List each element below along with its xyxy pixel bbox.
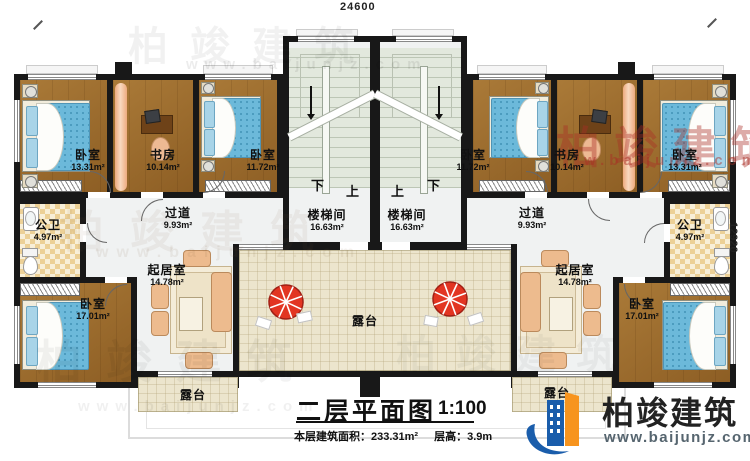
bed-duvet (689, 302, 716, 370)
terrace-door (467, 244, 511, 250)
room-area: 14.78m² (540, 277, 610, 287)
floor-height-label: 层高： (434, 431, 467, 443)
room-label-bedroom: 卧室11.72m² (228, 149, 298, 173)
room-name: 卧室 (607, 298, 677, 311)
room-label-study: 书房10.14m² (128, 149, 198, 173)
room-name: 卧室 (58, 298, 128, 311)
sofa-chair (583, 284, 601, 309)
window (479, 74, 545, 80)
room-name: 起居室 (132, 264, 202, 277)
floor-height-value: 3.9m (467, 431, 492, 443)
window (14, 306, 20, 364)
room-area: 11.72m² (438, 162, 508, 172)
window (654, 74, 722, 80)
door-opening (105, 277, 127, 283)
title-underline (296, 421, 474, 423)
stair-direction-arrow (310, 86, 312, 116)
room-name: 卧室 (228, 149, 298, 162)
room-name: 起居室 (540, 264, 610, 277)
room-label-bathroom: 公卫4.97m² (13, 219, 83, 243)
dimension-tick (33, 20, 43, 30)
room-label-bedroom: 卧室11.72m² (438, 149, 508, 173)
stair-arrow-head (435, 114, 443, 120)
window-sill (477, 65, 547, 74)
room-label-bedroom: 卧室13.31m² (53, 149, 123, 173)
pillow (537, 101, 548, 128)
lamp (203, 161, 214, 172)
drawing-scale: 1:100 (438, 398, 487, 420)
window-sill (392, 29, 454, 36)
room-area: 16.63m² (372, 222, 442, 232)
pillow (204, 129, 215, 156)
room-name: 楼梯间 (372, 209, 442, 222)
room-label-bedroom: 卧室13.31m² (650, 149, 720, 173)
room-name: 书房 (532, 149, 602, 162)
lamp (715, 86, 727, 98)
lamp (25, 176, 37, 188)
room-name: 楼梯间 (292, 209, 362, 222)
pillow (26, 138, 38, 168)
dimension-tick (707, 18, 717, 28)
stair-up-label: 上 (346, 181, 359, 200)
watermark-text: 柏竣建筑 (396, 322, 636, 380)
company-website: www.baijunjz.com (604, 429, 750, 446)
watermark-text: 柏竣建筑 (36, 326, 316, 392)
wardrobe (20, 283, 80, 296)
right-dimension-label: 12920 (727, 222, 739, 253)
watermark-site: www.baijunjz.com (186, 56, 427, 73)
stair-up-label: 上 (391, 181, 404, 200)
room-area: 4.97m² (655, 232, 725, 242)
room-name: 书房 (128, 149, 198, 162)
window-sill (652, 65, 724, 74)
window-sill (26, 65, 98, 74)
room-area: 13.31m² (53, 162, 123, 172)
stair-direction-arrow (438, 86, 440, 116)
room-area: 9.93m² (497, 220, 567, 230)
window (205, 74, 271, 80)
umbrella-icon (430, 279, 470, 319)
room-area: 14.78m² (132, 277, 202, 287)
wall-stub (618, 62, 635, 75)
room-label-corridor: 过道9.93m² (143, 207, 213, 231)
room-name: 卧室 (438, 149, 508, 162)
window (28, 74, 96, 80)
sofa (211, 272, 232, 332)
door-opening (640, 192, 662, 198)
lamp (538, 83, 549, 94)
room-label-stairwell: 楼梯间16.63m² (292, 209, 362, 233)
room-name: 过道 (497, 207, 567, 220)
room-area: 10.14m² (532, 162, 602, 172)
room-name: 卧室 (650, 149, 720, 162)
room-label-bedroom: 卧室17.01m² (607, 298, 677, 322)
corridor-floor (613, 244, 664, 277)
lamp (25, 86, 37, 98)
computer-monitor (144, 109, 161, 124)
room-area: 11.72m² (228, 162, 298, 172)
floor-area-label: 本层建筑面积： (294, 431, 371, 443)
room-label-bathroom: 公卫4.97m² (655, 219, 725, 243)
room-label-terrace: 露台 (337, 315, 393, 328)
pillow (714, 306, 726, 335)
room-name: 公卫 (655, 219, 725, 232)
pillow (714, 337, 726, 366)
room-label-stairwell: 楼梯间16.63m² (372, 209, 442, 233)
floor-plan-drawing: 24600 12920 (0, 0, 750, 461)
curtain-strip (115, 83, 127, 191)
window (730, 306, 736, 364)
door-opening (382, 242, 410, 250)
stair-down-label: 下 (427, 175, 440, 194)
door-opening (587, 192, 609, 198)
room-area: 17.01m² (58, 311, 128, 321)
stair-down-label: 下 (311, 175, 324, 194)
room-area: 10.14m² (128, 162, 198, 172)
room-area: 13.31m² (650, 162, 720, 172)
pillow (26, 106, 38, 136)
sofa-chair (151, 284, 169, 309)
pillow (204, 101, 215, 128)
door-opening (623, 277, 645, 283)
floor-area-value: 233.31m² (371, 431, 418, 443)
lamp (715, 176, 727, 188)
room-label-living: 起居室14.78m² (132, 264, 202, 288)
window (14, 100, 20, 162)
watermark-site: www.baijunjz.com (96, 244, 362, 262)
room-area: 9.93m² (143, 220, 213, 230)
room-label-terrace: 露台 (158, 389, 228, 402)
top-dimension-label: 24600 (340, 1, 376, 13)
room-name: 过道 (143, 207, 213, 220)
room-area: 4.97m² (13, 232, 83, 242)
drawing-info: 本层建筑面积：233.31m²层高：3.9m (294, 428, 492, 444)
toilet (23, 256, 38, 275)
company-name: 柏竣建筑 (602, 388, 738, 434)
room-area: 17.01m² (607, 311, 677, 321)
room-label-bedroom: 卧室17.01m² (58, 298, 128, 322)
wardrobe (670, 283, 730, 296)
toilet (714, 256, 729, 275)
room-area: 16.63m² (292, 222, 362, 232)
room-label-study: 书房10.14m² (532, 149, 602, 173)
room-label-living: 起居室14.78m² (540, 264, 610, 288)
room-name: 露台 (337, 315, 393, 328)
room-name: 公卫 (13, 219, 83, 232)
company-logo-icon (522, 386, 600, 458)
window (396, 36, 452, 42)
room-label-corridor: 过道9.93m² (497, 207, 567, 231)
lamp (203, 83, 214, 94)
room-name: 卧室 (53, 149, 123, 162)
stair-arrow-head (307, 114, 315, 120)
room-name: 露台 (158, 389, 228, 402)
